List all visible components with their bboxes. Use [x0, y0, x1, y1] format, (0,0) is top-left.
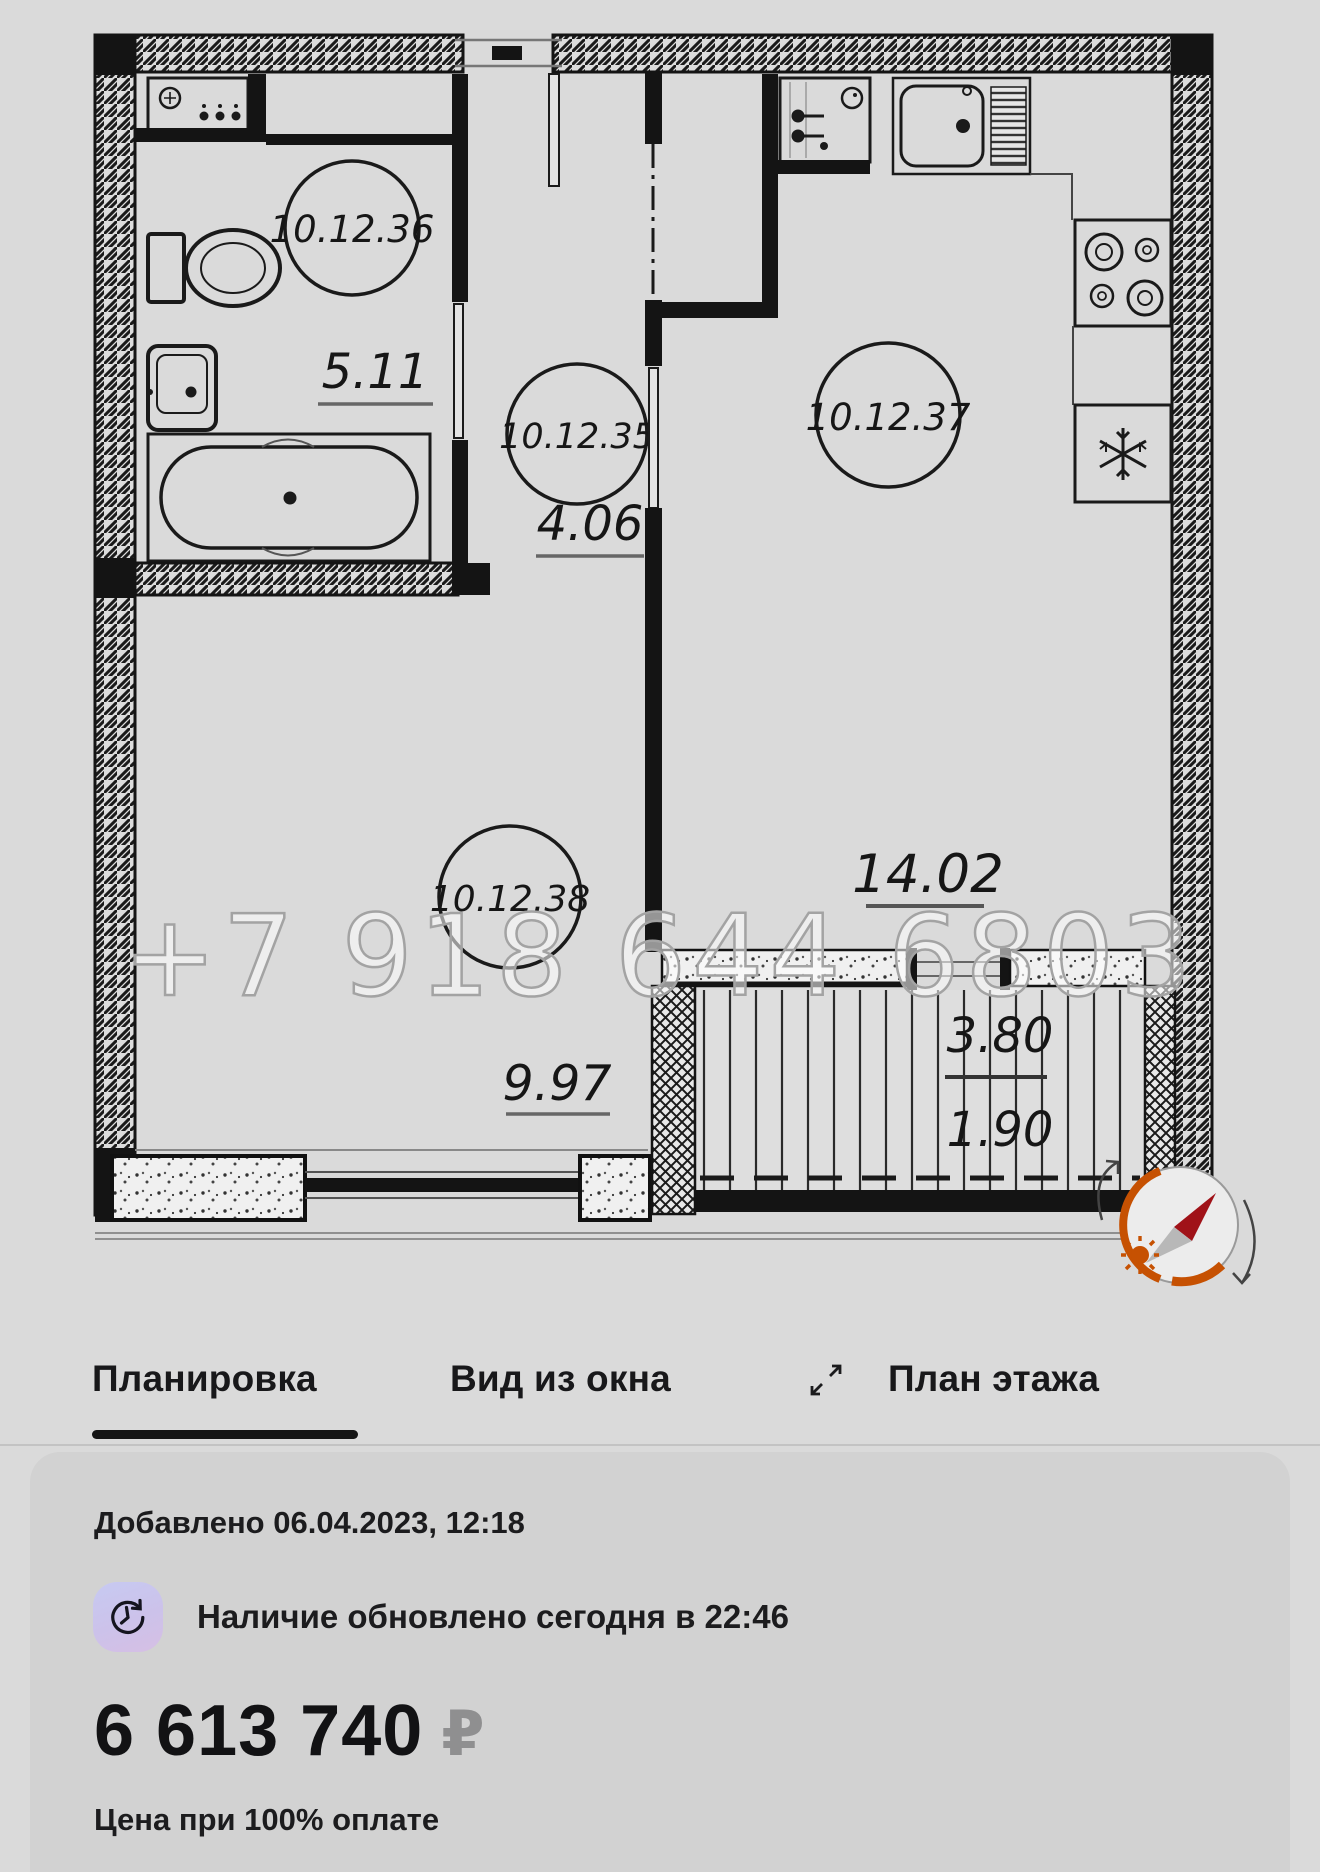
- utility-shaft: [662, 74, 870, 318]
- price-note: Цена при 100% оплате: [94, 1802, 439, 1838]
- room-number-hallway: 10.12.35: [499, 417, 655, 457]
- kitchen-living: 10.12.37 14.02: [806, 343, 1004, 906]
- bathroom: 10.12.36 5.11: [135, 74, 490, 595]
- sink-icon: [147, 346, 216, 430]
- refresh-clock-icon: [105, 1594, 151, 1640]
- toilet-icon: [148, 230, 280, 306]
- balcony-dim-bottom: 1.90: [947, 1102, 1054, 1158]
- room-area-bedroom: 9.97: [502, 1055, 611, 1112]
- stove-icon: [1075, 220, 1171, 326]
- washing-machine-icon: [148, 78, 248, 130]
- availability-icon-badge: [93, 1582, 163, 1652]
- tab-window-view[interactable]: Вид из окна: [450, 1358, 671, 1400]
- active-tab-underline: [92, 1430, 358, 1439]
- price-value: 6 613 740: [94, 1690, 423, 1772]
- tab-floor-plan[interactable]: План этажа: [888, 1358, 1099, 1400]
- room-number-kitchen: 10.12.37: [806, 396, 971, 439]
- entry-door-opening: [455, 40, 562, 186]
- phone-watermark: +7 918 644 6803: [123, 892, 1197, 1022]
- room-area-bathroom: 5.11: [322, 344, 429, 400]
- room-area-hallway: 4.06: [537, 496, 644, 552]
- expand-icon: [806, 1360, 846, 1400]
- hallway: 10.12.35 4.06: [499, 364, 655, 556]
- price-row: 6 613 740 ₽: [94, 1690, 484, 1772]
- interior-partition: [645, 72, 662, 952]
- bathtub-icon: [148, 434, 430, 561]
- bedroom-window: [112, 1150, 650, 1220]
- tab-layout[interactable]: Планировка: [92, 1358, 317, 1400]
- ground-line: [95, 1233, 1210, 1239]
- date-added-text: Добавлено 06.04.2023, 12:18: [94, 1505, 525, 1541]
- floor-plan-image[interactable]: 10.12.36 5.11 10.12.35 4.06: [0, 0, 1320, 1330]
- fridge-icon: [1075, 405, 1171, 502]
- section-divider: [0, 1444, 1320, 1446]
- room-number-bathroom: 10.12.36: [270, 208, 435, 251]
- ruble-sign: ₽: [441, 1697, 484, 1770]
- media-tabs: Планировка Вид из окна План этажа: [0, 1352, 1320, 1444]
- kitchen-sink-icon: [893, 78, 1030, 174]
- availability-text: Наличие обновлено сегодня в 22:46: [197, 1598, 789, 1636]
